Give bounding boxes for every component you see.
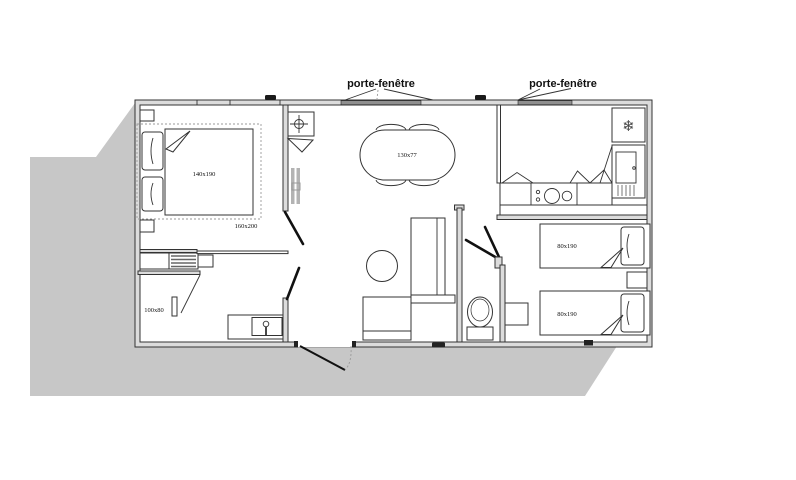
kitchen-bedroom-wall [497,215,647,220]
nightstand [140,110,154,121]
bedroom-wall [140,250,197,253]
patio-door-left [341,101,421,105]
round-stool [367,251,398,282]
corner-cabinet [505,303,528,325]
pillow [142,132,163,170]
kitchen-lower-cabinet [500,205,647,215]
wc-wall [457,208,462,342]
pillow [621,227,644,265]
dresser [140,253,169,269]
roof-vent-icon [265,95,276,100]
shower-wall [138,271,200,275]
bath-wall-stub [283,298,288,342]
floor-plan-canvas: ❄ porte-fenêtre porte- [0,0,796,480]
label-porte-fenetre-left: porte-fenêtre [347,78,415,90]
dim-twin-bed-top: 80x190 [557,243,577,250]
roof-vent-icon [475,95,486,100]
hall-cabinet [198,255,213,267]
shower-door-handle [172,297,177,316]
utility-fitting [584,340,593,346]
tall-cabinet [411,218,445,295]
dim-twin-bed-bottom: 80x190 [557,311,577,318]
toilet [467,297,493,340]
snowflake-icon: ❄ [622,117,635,135]
floor-plan: ❄ porte-fenêtre porte- [0,0,796,480]
water-heater [612,145,645,198]
kitchen-counter [500,183,612,205]
bench-seat [363,297,411,340]
dim-shower: 100x80 [144,307,164,314]
kitchen-wall [497,105,501,183]
nightstand [627,272,647,288]
label-porte-fenetre-right: porte-fenêtre [529,78,597,90]
dim-dining-table: 130x77 [397,152,417,159]
utility-fitting [432,343,445,348]
partition-wall [283,105,288,211]
nightstand [140,220,154,232]
dim-master-bed: 140x190 [193,171,216,178]
pillow [142,177,163,211]
pillow [621,294,644,332]
hall-shelf-wall [197,251,288,254]
bedroom2-wall [500,265,505,342]
patio-door-right [518,101,572,105]
low-shelf [411,295,455,303]
dim-master-room: 160x200 [235,223,258,230]
